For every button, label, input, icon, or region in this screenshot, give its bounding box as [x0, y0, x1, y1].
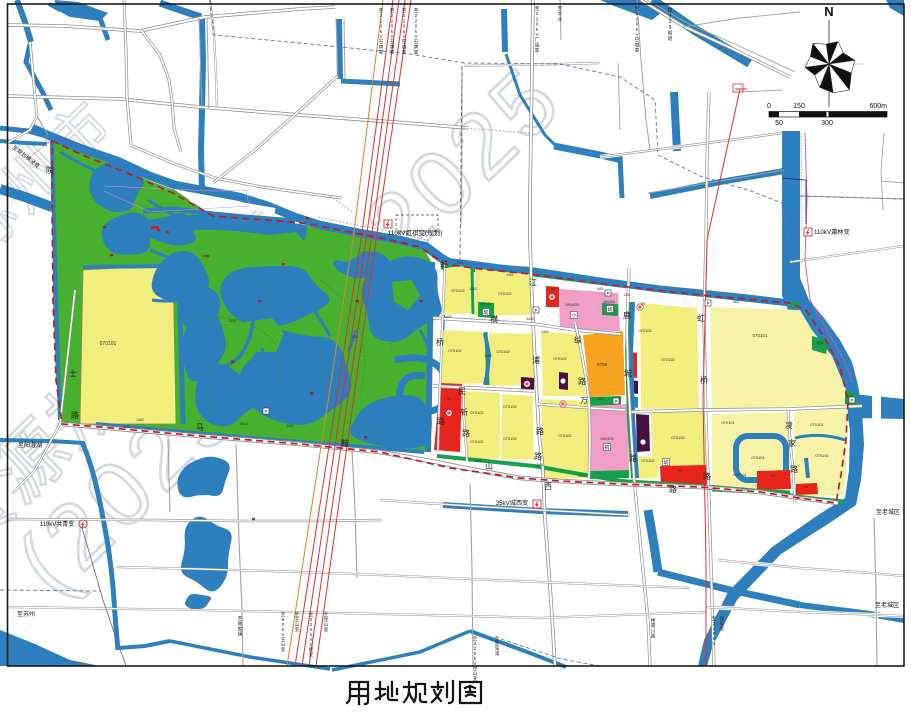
svg-text:1401: 1401: [741, 488, 749, 492]
svg-text:万: 万: [580, 396, 588, 405]
svg-text:1402: 1402: [708, 487, 716, 491]
svg-text:09: 09: [355, 299, 359, 303]
svg-text:09: 09: [419, 299, 423, 303]
svg-text:09: 09: [202, 254, 206, 258]
svg-text:变: 变: [281, 646, 286, 653]
svg-text:变: 变: [295, 626, 300, 633]
svg-text:鹿: 鹿: [623, 310, 631, 320]
svg-text:至老城区: 至老城区: [875, 601, 899, 609]
svg-text:070101: 070101: [815, 453, 829, 458]
svg-text:桥: 桥: [700, 375, 708, 385]
svg-text:西: 西: [544, 482, 552, 491]
svg-text:070102: 070102: [553, 356, 567, 361]
svg-text:070101: 070101: [721, 420, 735, 425]
svg-text:09: 09: [310, 391, 314, 395]
svg-text:道: 道: [667, 35, 672, 42]
svg-text:1402: 1402: [578, 474, 586, 478]
svg-text:1402: 1402: [474, 459, 482, 463]
svg-text:1401: 1401: [123, 425, 131, 429]
svg-text:变: 变: [535, 47, 540, 54]
svg-text:路: 路: [437, 416, 445, 426]
svg-text:09: 09: [110, 253, 114, 257]
svg-text:0: 0: [767, 103, 771, 110]
svg-text:民: 民: [458, 387, 466, 396]
svg-text:09: 09: [771, 473, 776, 478]
svg-text:小: 小: [571, 312, 576, 319]
svg-text:路: 路: [651, 633, 656, 640]
svg-text:09: 09: [103, 225, 107, 229]
svg-text:仓: 仓: [558, 15, 563, 21]
svg-text:150: 150: [793, 103, 805, 110]
svg-text:09: 09: [364, 435, 368, 439]
svg-text:院: 院: [46, 165, 54, 175]
svg-text:09: 09: [551, 286, 556, 291]
svg-text:070102: 070102: [451, 288, 465, 293]
svg-text:马: 马: [196, 423, 204, 432]
svg-text:50: 50: [775, 120, 783, 127]
svg-text:横: 横: [490, 314, 498, 324]
svg-text:幼: 幼: [663, 459, 668, 466]
svg-text:虹: 虹: [440, 260, 448, 269]
svg-text:P: P: [606, 291, 609, 296]
svg-text:0823: 0823: [240, 422, 248, 426]
svg-text:35kV城西变: 35kV城西变: [496, 499, 529, 507]
svg-text:09: 09: [678, 468, 683, 473]
svg-text:110kV共青变: 110kV共青变: [40, 520, 75, 528]
svg-text:070102: 070102: [641, 458, 655, 463]
svg-text:1402: 1402: [484, 354, 492, 358]
svg-text:P: P: [850, 398, 853, 403]
svg-text:凌: 凌: [785, 420, 793, 430]
svg-text:1402: 1402: [136, 418, 144, 422]
svg-text:1401: 1401: [732, 300, 740, 304]
svg-text:09: 09: [258, 299, 262, 303]
svg-text:至老城区: 至老城区: [876, 508, 900, 516]
svg-text:变: 变: [635, 47, 640, 54]
svg-text:1401: 1401: [846, 394, 854, 398]
svg-text:1402: 1402: [469, 287, 477, 291]
svg-text:09: 09: [231, 359, 235, 363]
svg-text:变: 变: [402, 49, 407, 56]
svg-text:09: 09: [447, 396, 452, 401]
svg-text:山: 山: [485, 461, 493, 471]
svg-text:070101: 070101: [733, 472, 747, 477]
svg-text:070102: 070102: [661, 357, 675, 362]
svg-text:至阳澄湖: 至阳澄湖: [18, 441, 42, 449]
svg-text:变: 变: [414, 49, 419, 56]
svg-text:变: 变: [379, 49, 384, 56]
svg-text:070102: 070102: [496, 349, 510, 354]
svg-text:路: 路: [669, 484, 677, 494]
svg-text:110kV蕭林变: 110kV蕭林变: [814, 228, 850, 236]
svg-text:09: 09: [804, 484, 809, 489]
svg-text:家: 家: [238, 625, 243, 631]
svg-text:1402: 1402: [444, 315, 452, 319]
svg-text:070101: 070101: [752, 333, 768, 338]
svg-text:鞍: 鞍: [341, 438, 349, 448]
svg-text:路: 路: [790, 464, 798, 474]
svg-text:城: 城: [624, 369, 632, 378]
svg-text:1401: 1401: [506, 273, 514, 277]
svg-text:江: 江: [529, 278, 537, 287]
svg-text:变: 变: [720, 625, 725, 632]
svg-text:1402: 1402: [541, 330, 549, 334]
svg-text:070102: 070102: [470, 439, 484, 444]
svg-text:变: 变: [309, 651, 314, 658]
svg-text:070102: 070102: [671, 435, 685, 440]
svg-text:家: 家: [788, 438, 796, 448]
svg-text:纵: 纵: [574, 336, 582, 345]
svg-text:1401: 1401: [536, 463, 544, 467]
svg-text:0709: 0709: [597, 362, 608, 367]
svg-text:070102: 070102: [558, 433, 572, 438]
svg-text:路: 路: [71, 410, 79, 420]
svg-text:N: N: [824, 4, 833, 19]
svg-text:070102: 070102: [638, 328, 652, 333]
svg-text:浦: 浦: [532, 355, 540, 365]
svg-text:至苏州: 至苏州: [17, 610, 35, 618]
svg-text:幼: 幼: [483, 309, 488, 316]
svg-text:080403: 080403: [600, 436, 614, 441]
svg-text:070102: 070102: [448, 348, 462, 353]
svg-text:虹: 虹: [697, 314, 705, 323]
svg-text:600m: 600m: [869, 103, 887, 110]
svg-text:070102: 070102: [503, 436, 517, 441]
svg-text:初: 初: [604, 444, 609, 451]
svg-text:士: 士: [69, 368, 77, 378]
svg-text:09: 09: [305, 216, 309, 220]
svg-text:路: 路: [534, 451, 542, 461]
svg-text:080403: 080403: [565, 302, 579, 307]
svg-text:1402: 1402: [796, 496, 804, 500]
svg-text:桥: 桥: [436, 337, 444, 347]
svg-text:070101: 070101: [100, 341, 117, 347]
svg-text:P: P: [264, 409, 267, 414]
svg-text:P: P: [614, 399, 617, 404]
svg-text:路: 路: [703, 471, 711, 481]
svg-text:1401: 1401: [816, 341, 824, 345]
svg-text:1401: 1401: [596, 287, 604, 291]
svg-text:300: 300: [821, 120, 833, 127]
svg-text:变: 变: [390, 49, 395, 56]
svg-text:1401: 1401: [623, 293, 631, 297]
svg-text:变: 变: [324, 626, 329, 633]
svg-text:P: P: [534, 308, 537, 313]
svg-text:080404: 080404: [603, 300, 615, 304]
svg-text:1301: 1301: [286, 424, 294, 428]
svg-text:070101: 070101: [810, 422, 824, 427]
svg-text:V: V: [713, 641, 716, 646]
svg-text:09: 09: [641, 302, 645, 306]
svg-text:070102: 070102: [503, 404, 517, 409]
svg-text:1301: 1301: [351, 335, 359, 339]
svg-text:路: 路: [578, 376, 586, 386]
svg-text:070101: 070101: [751, 455, 765, 460]
svg-text:1401: 1401: [456, 261, 464, 265]
svg-text:070102: 070102: [498, 291, 512, 296]
svg-text:镇: 镇: [238, 631, 243, 638]
svg-text:070102: 070102: [470, 410, 484, 415]
svg-text:新: 新: [460, 407, 468, 417]
svg-text:路: 路: [629, 453, 637, 463]
svg-text:1402: 1402: [526, 317, 534, 321]
svg-text:P: P: [706, 301, 709, 306]
svg-text:幼: 幼: [607, 306, 612, 313]
svg-text:1303: 1303: [228, 319, 236, 323]
svg-text:1401: 1401: [596, 397, 604, 401]
svg-text:路: 路: [462, 428, 470, 438]
svg-text:浦: 浦: [495, 650, 500, 657]
svg-text:080404: 080404: [481, 302, 492, 306]
svg-text:路: 路: [536, 426, 544, 436]
